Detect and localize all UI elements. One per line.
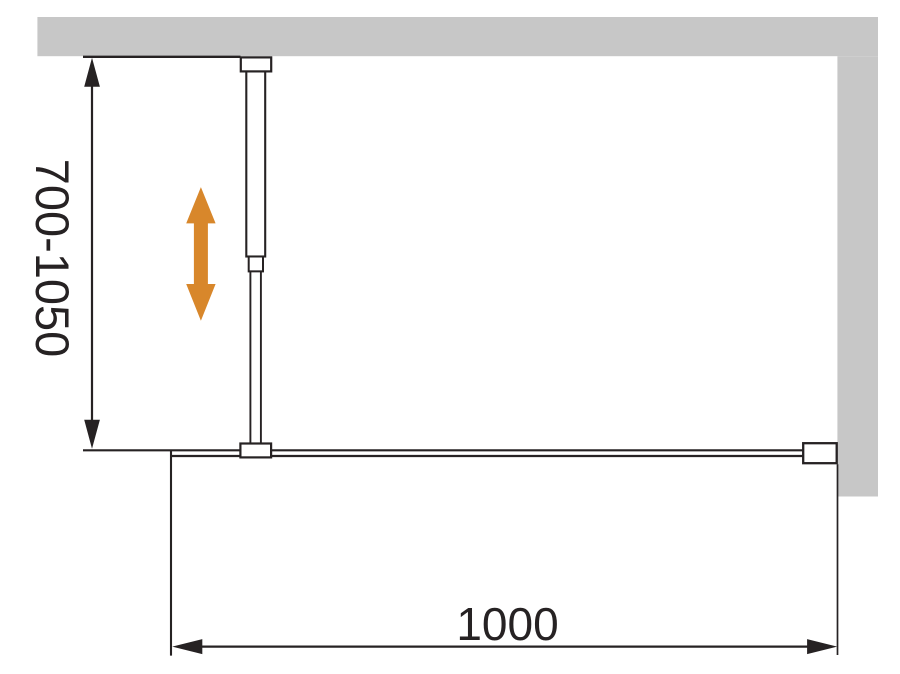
svg-text:1000: 1000 xyxy=(456,598,558,650)
svg-text:700-1050: 700-1050 xyxy=(26,159,79,358)
